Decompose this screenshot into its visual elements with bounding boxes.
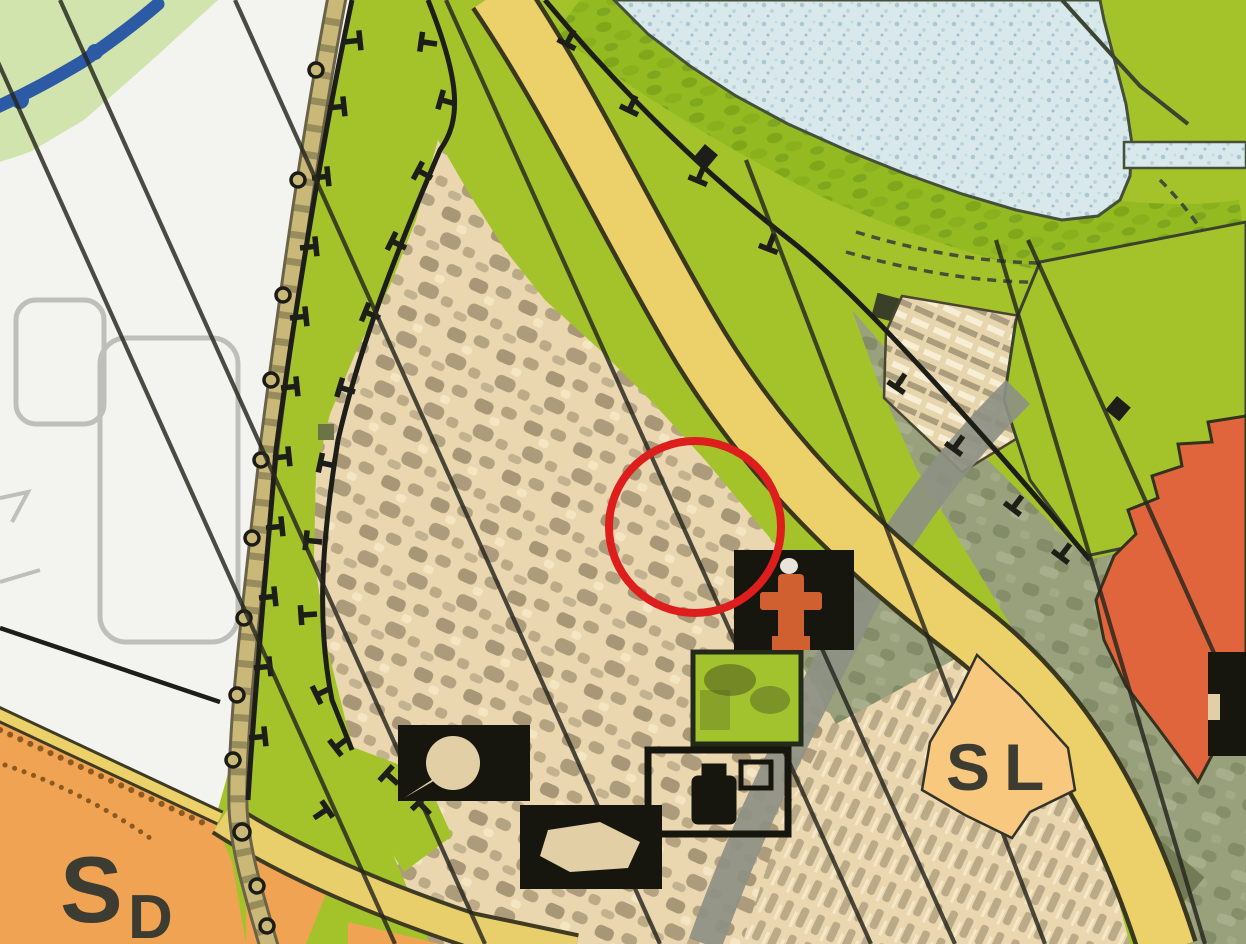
monument-oval-symbol xyxy=(520,805,662,889)
map-viewport: SL SD xyxy=(0,0,1246,944)
zoning-map[interactable]: SL SD xyxy=(0,0,1246,944)
edge-monument-symbol xyxy=(1208,652,1246,756)
park-square xyxy=(693,652,801,744)
church-symbol xyxy=(734,550,854,650)
small-olive-square xyxy=(318,424,334,440)
lake-outlet-channel xyxy=(1124,142,1246,168)
monument-circle-symbol xyxy=(398,725,530,801)
boundary-glyph-square xyxy=(698,148,715,165)
